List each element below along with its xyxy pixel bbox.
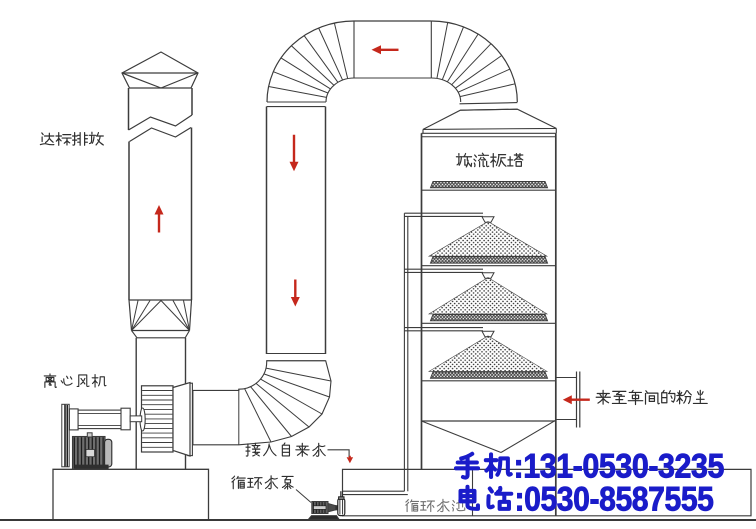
svg-text::0530-8587555: :0530-8587555 (515, 480, 714, 518)
